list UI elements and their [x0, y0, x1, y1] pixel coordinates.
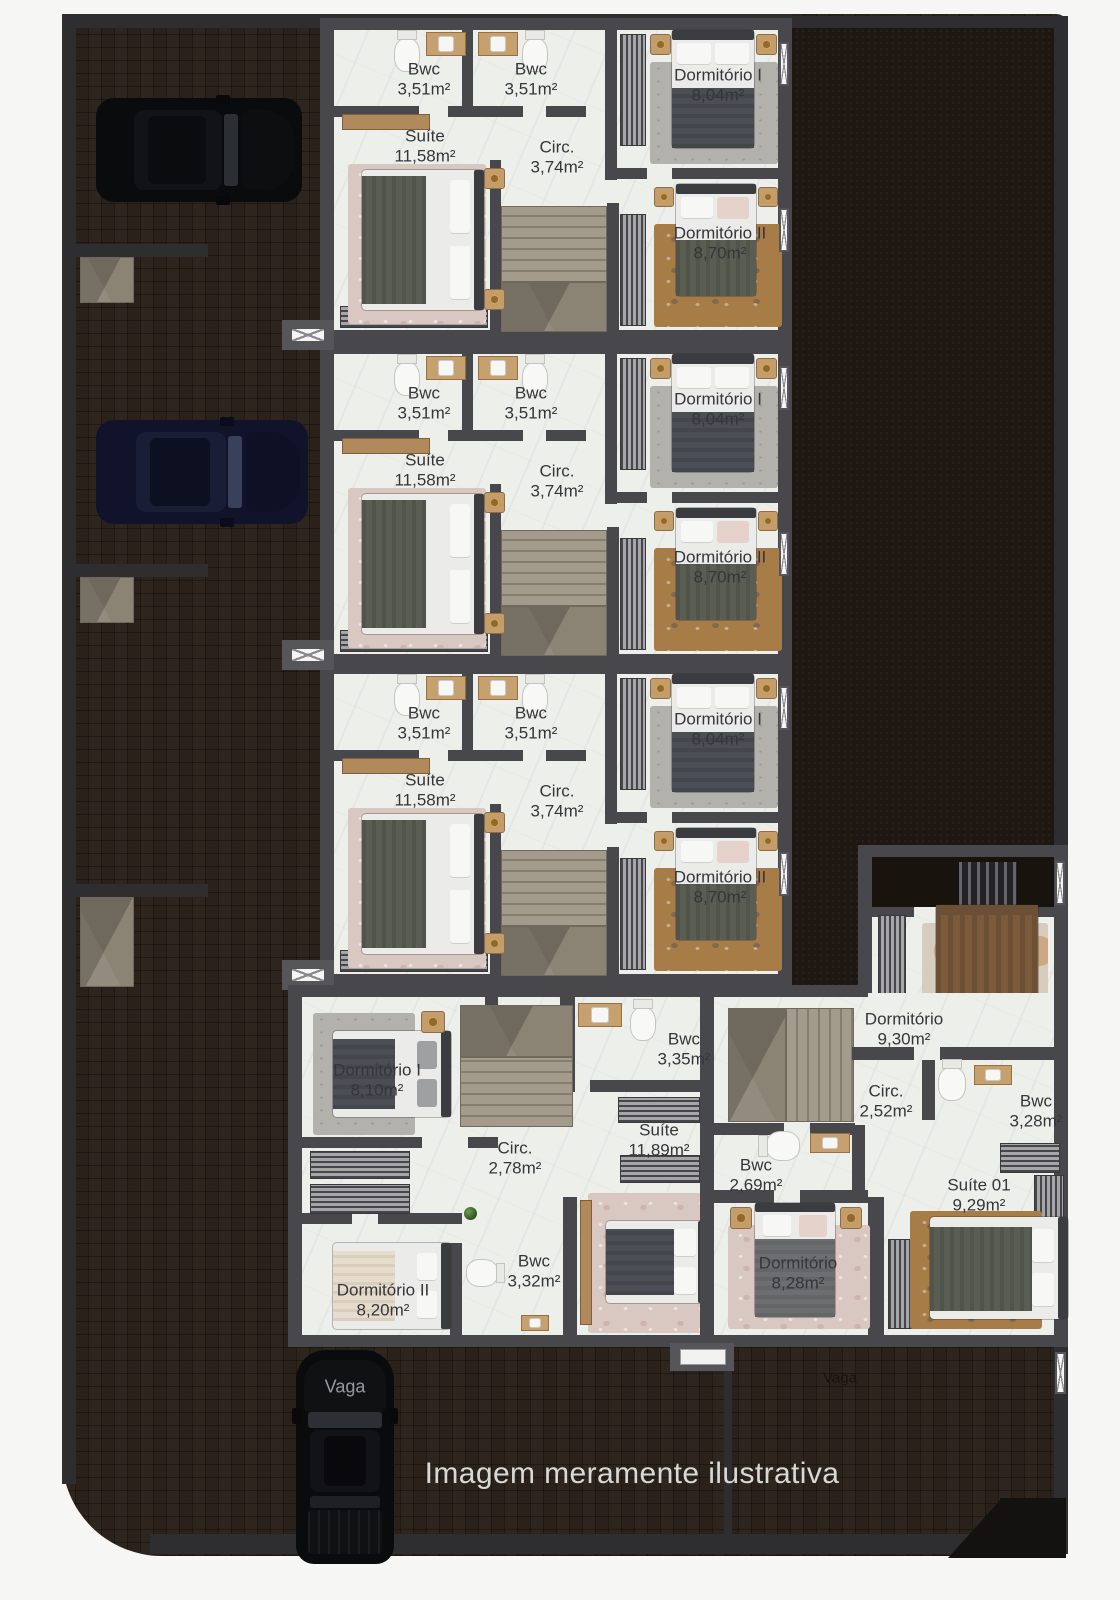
room-label-circ: Circ.2,78m²: [489, 1138, 542, 1177]
ramp: [1000, 1498, 1066, 1558]
car-sunroof: [324, 1436, 366, 1486]
wall: [672, 492, 778, 503]
bed-pillow: [799, 1215, 827, 1237]
wall: [546, 430, 586, 441]
room-label-bwc-left: Bwc2,69m²: [730, 1155, 783, 1194]
toilet: [466, 1259, 498, 1287]
closet: [310, 1151, 410, 1179]
wall: [320, 342, 792, 354]
wall: [288, 1335, 715, 1347]
bathroom-vanity: [974, 1065, 1012, 1085]
wall: [617, 168, 647, 179]
room-label-bwc2: Bwc3,51m²: [505, 59, 558, 98]
room-label-dorm2: Dormitório II8,70m²: [674, 547, 767, 586]
apartment-unit-1: Bwc3,51m² Bwc3,51m² Suíte11,58m² Circ.3,…: [320, 18, 792, 342]
closet: [620, 34, 646, 146]
nightstand: [654, 187, 674, 207]
car-black-top: [96, 98, 302, 202]
closet: [618, 1097, 700, 1123]
stairs: [501, 206, 607, 282]
window: [779, 42, 789, 86]
closet: [620, 358, 646, 470]
car-mirror: [216, 95, 230, 104]
nightstand: [484, 289, 505, 310]
nightstand: [654, 511, 674, 531]
bed-headboard: [676, 508, 756, 518]
nightstand: [756, 34, 777, 55]
stairs-landing: [501, 606, 607, 656]
stairs-landing: [728, 1008, 786, 1122]
room-label-bwc1: Bwc3,51m²: [398, 383, 451, 422]
wall: [940, 1047, 1054, 1060]
wall: [378, 1213, 462, 1224]
parking-divider-pad: [80, 577, 134, 623]
apartment-unit-3: Bwc3,51m² Bwc3,51m² Suíte11,58m² Circ.3,…: [320, 662, 792, 986]
bed-pillow: [450, 246, 470, 300]
bed-pillow: [1032, 1229, 1054, 1263]
side-yard-patch: [782, 880, 858, 986]
wall: [590, 1080, 715, 1092]
parking-spot-label-left: Vaga: [325, 1377, 366, 1398]
nightstand: [484, 613, 505, 634]
nightstand: [654, 831, 674, 851]
bed-headboard: [676, 184, 756, 194]
window: [1055, 861, 1065, 905]
car-mirror: [216, 196, 230, 205]
nightstand: [758, 187, 778, 207]
wall: [320, 342, 334, 666]
room-label-dorm1: Dormitório I8,04m²: [674, 389, 762, 428]
bed-suite: [362, 814, 484, 954]
bed-pillow: [715, 43, 749, 65]
car-windshield: [308, 1412, 382, 1428]
bed-pillow: [677, 43, 711, 65]
bed-pillow: [450, 890, 470, 944]
nightstand: [484, 812, 505, 833]
room-label-suite01: Suíte 019,29m²: [947, 1175, 1010, 1214]
disclaimer-caption: Imagem meramente ilustrativa: [425, 1457, 840, 1491]
room-label-bwc: Bwc3,32m²: [508, 1251, 561, 1290]
window: [779, 532, 789, 576]
bed-pillow: [450, 180, 470, 234]
wall: [150, 1534, 1068, 1554]
bed-pillow: [763, 1215, 791, 1237]
room-label-bwc1: Bwc3,51m²: [398, 703, 451, 742]
parking-divider-wall: [76, 244, 208, 257]
bed-blanket: [930, 1227, 1032, 1311]
room-label-suite: Suíte11,58m²: [394, 770, 455, 809]
parking-divider-wall: [724, 1371, 732, 1539]
window: [779, 366, 789, 410]
bathroom-vanity: [521, 1315, 549, 1331]
car-navy: [96, 420, 308, 524]
toilet: [938, 1067, 966, 1101]
bed-pillow: [674, 1229, 696, 1257]
room-label-bwc-top: Bwc3,35m²: [658, 1029, 711, 1068]
nightstand: [650, 34, 671, 55]
stairs: [501, 530, 607, 606]
wall: [607, 203, 619, 342]
bed-suite: [362, 170, 484, 310]
wall: [782, 16, 1068, 28]
parking-divider-wall: [76, 884, 208, 897]
stairs: [786, 1008, 854, 1122]
window: [779, 686, 789, 730]
bathroom-vanity: [478, 32, 518, 56]
stairs-landing: [501, 926, 607, 976]
bed-headboard: [936, 905, 1038, 915]
bed-suite01: [930, 1217, 1068, 1319]
bathroom-vanity: [426, 676, 466, 700]
nightstand: [756, 358, 777, 379]
window: [290, 967, 326, 983]
wall: [617, 812, 647, 823]
room-label-circ: Circ.3,74m²: [531, 461, 584, 500]
bed-pillow: [450, 570, 470, 624]
nightstand: [650, 678, 671, 699]
car-hood: [246, 432, 300, 512]
bed-pillow: [417, 1253, 437, 1281]
bed-pillow: [674, 1267, 696, 1295]
nightstand: [758, 831, 778, 851]
bed-pillow: [715, 367, 749, 389]
wall: [700, 985, 868, 997]
nightstand: [840, 1207, 862, 1229]
wall: [852, 1047, 914, 1060]
bed-suite: [362, 494, 484, 634]
wall: [563, 1197, 577, 1347]
bathroom-vanity: [478, 356, 518, 380]
car-mirror: [389, 1408, 398, 1424]
nightstand: [758, 511, 778, 531]
parking-divider-wall: [76, 564, 208, 577]
closet: [620, 678, 646, 790]
bathroom-vanity: [426, 32, 466, 56]
room-label-dorm1: Dormitório I8,10m²: [333, 1060, 421, 1099]
bed-blanket: [362, 500, 426, 628]
stairs-landing: [460, 1005, 573, 1057]
wall: [607, 527, 619, 666]
wall: [448, 106, 523, 117]
wall: [288, 985, 715, 997]
car-mirror: [220, 417, 234, 426]
stairs: [501, 850, 607, 926]
side-yard: [782, 16, 1068, 880]
bed-pillow: [681, 197, 713, 219]
room-label-circ: Circ.3,74m²: [531, 137, 584, 176]
bed-pillow: [715, 687, 749, 709]
elevator: [958, 861, 1018, 907]
apartment-unit-4: Dormitório I8,10m² Circ.2,78m² Bwc3,35m²…: [288, 985, 715, 1347]
wall: [448, 430, 523, 441]
nightstand: [484, 492, 505, 513]
closet: [620, 538, 646, 650]
wall: [62, 14, 76, 1484]
car-mirror: [220, 518, 234, 527]
car-mirror: [292, 1408, 301, 1424]
room-label-suite: Suíte11,89m²: [628, 1120, 689, 1159]
closet: [1000, 1143, 1060, 1173]
window: [779, 208, 789, 252]
closet: [620, 214, 646, 326]
room-label-dorm-930: Dormitório9,30m²: [865, 1009, 943, 1048]
parking-divider-pad: [80, 897, 134, 987]
car-rear-window: [310, 1496, 380, 1508]
wall: [546, 750, 586, 761]
wall: [448, 750, 523, 761]
room-label-dorm-828: Dormitório8,28m²: [759, 1253, 837, 1292]
wall: [605, 354, 617, 504]
bed-blanket: [606, 1229, 674, 1295]
wall: [700, 1335, 1068, 1347]
parking-divider-pad: [80, 257, 134, 303]
closet: [620, 858, 646, 970]
bathroom-vanity: [810, 1133, 850, 1153]
plant: [464, 1207, 477, 1220]
wall: [302, 1137, 422, 1148]
nightstand: [650, 358, 671, 379]
wall: [320, 18, 334, 342]
toilet: [630, 1007, 656, 1041]
car-sunroof: [148, 116, 206, 184]
wall: [672, 168, 778, 179]
bed-headboard: [676, 828, 756, 838]
nightstand: [484, 168, 505, 189]
floor-plan-illustration: Bwc3,51m² Bwc3,51m² Suíte11,58m² Circ.3,…: [0, 0, 1120, 1600]
bed-pillow: [677, 687, 711, 709]
nightstand: [730, 1207, 752, 1229]
wall: [858, 845, 1068, 857]
wall: [450, 1243, 462, 1347]
bed-headboard: [672, 354, 754, 364]
car-windshield: [228, 436, 242, 508]
bed-pillow: [717, 521, 749, 543]
bed-headboard: [441, 1243, 451, 1329]
wall: [605, 674, 617, 824]
window: [290, 327, 326, 343]
bed-suite: [606, 1221, 708, 1303]
room-label-dorm2: Dormitório II8,70m²: [674, 867, 767, 906]
wall: [302, 1213, 352, 1224]
wall: [922, 1060, 935, 1120]
wall: [800, 1190, 868, 1203]
window: [1055, 1352, 1066, 1394]
room-label-circ: Circ.2,52m²: [860, 1081, 913, 1120]
bed-pillow: [681, 841, 713, 863]
bathroom-vanity: [478, 676, 518, 700]
bed-headboard: [474, 170, 484, 310]
bed-headboard: [1058, 1217, 1068, 1319]
wall: [288, 985, 302, 1347]
room-label-dorm2: Dormitório II8,70m²: [674, 223, 767, 262]
wall: [607, 847, 619, 986]
window: [779, 852, 789, 896]
bed-pillow: [681, 521, 713, 543]
bathroom-vanity: [426, 356, 466, 380]
room-label-circ: Circ.3,74m²: [531, 781, 584, 820]
bed-pillow: [450, 504, 470, 558]
bed-pillow: [1032, 1273, 1054, 1307]
stairs-landing: [501, 282, 607, 332]
parking-spot-label-right: Vaga: [823, 1370, 857, 1387]
wall: [546, 106, 586, 117]
entrance-door: [680, 1349, 726, 1365]
bed-headboard: [441, 1031, 451, 1117]
room-label-bwc2: Bwc3,51m²: [505, 703, 558, 742]
wall: [617, 492, 647, 503]
bed-pillow: [717, 197, 749, 219]
car-sunroof: [150, 438, 210, 506]
car-trunk: [308, 1510, 382, 1554]
wall: [320, 662, 334, 986]
bed-pillow: [717, 841, 749, 863]
car-windshield: [224, 114, 238, 186]
bed-pillow: [677, 367, 711, 389]
nightstand: [421, 1011, 445, 1033]
wall: [605, 30, 617, 180]
bed-headboard: [755, 1203, 835, 1212]
room-label-bwc2: Bwc3,51m²: [505, 383, 558, 422]
bed-headboard: [474, 814, 484, 954]
bed-headboard: [672, 674, 754, 684]
nightstand: [756, 678, 777, 699]
wall: [852, 1125, 865, 1195]
bathroom-vanity: [578, 1003, 622, 1027]
room-label-bwc1: Bwc3,51m²: [398, 59, 451, 98]
bed-blanket: [362, 820, 426, 948]
closet: [310, 1184, 410, 1214]
bed-blanket: [362, 176, 426, 304]
bed-headboard: [474, 494, 484, 634]
room-label-bwc-right: Bwc3,28m²: [1010, 1091, 1063, 1130]
room-label-dorm1: Dormitório I8,04m²: [674, 709, 762, 748]
room-label-dorm1: Dormitório I8,04m²: [674, 65, 762, 104]
nightstand: [484, 933, 505, 954]
window: [290, 647, 326, 663]
bed-pillow: [450, 824, 470, 878]
wardrobe: [580, 1200, 592, 1325]
stairs: [460, 1057, 573, 1127]
car-hood: [242, 110, 294, 190]
room-label-suite: Suíte11,58m²: [394, 450, 455, 489]
bed-headboard: [672, 30, 754, 40]
room-label-dorm2: Dormitório II8,20m²: [337, 1280, 430, 1319]
apartment-unit-2: Bwc3,51m² Bwc3,51m² Suíte11,58m² Circ.3,…: [320, 342, 792, 666]
wall: [672, 812, 778, 823]
room-label-suite: Suíte11,58m²: [394, 126, 455, 165]
wall: [868, 1197, 884, 1335]
wall: [320, 662, 792, 674]
wall: [320, 18, 792, 30]
